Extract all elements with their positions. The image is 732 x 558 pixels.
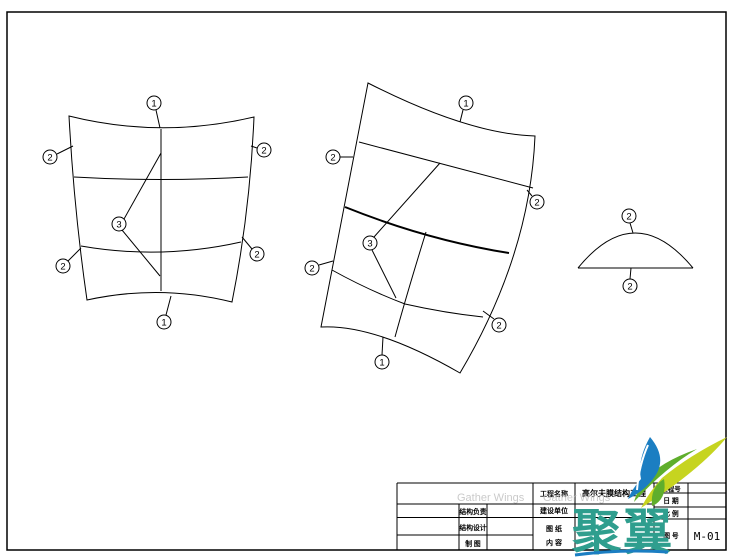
callout-balloon: 2 xyxy=(257,143,271,157)
callout-balloon: 2 xyxy=(623,279,637,293)
callout-number: 2 xyxy=(47,152,52,163)
structure-design-label: 结构设计 xyxy=(459,523,486,532)
callout-number: 1 xyxy=(463,98,468,109)
watermark: Gather Wings Gather Wings xyxy=(457,492,611,504)
callout-balloon: 2 xyxy=(305,261,319,275)
panel-c xyxy=(578,223,693,279)
leader-line xyxy=(630,268,631,279)
panel-b-seam-1 xyxy=(359,142,533,188)
callout-number: 2 xyxy=(627,281,632,292)
leader-line xyxy=(122,230,160,276)
leader-line xyxy=(372,250,396,298)
callout-number: 3 xyxy=(116,219,121,230)
callout-balloon: 1 xyxy=(459,96,473,110)
callout-balloon: 3 xyxy=(112,217,126,231)
callout-balloon: 2 xyxy=(56,259,70,273)
callout-balloon: 1 xyxy=(147,96,161,110)
leader-line xyxy=(166,296,171,315)
panel-c-arc xyxy=(578,233,693,268)
leader-line xyxy=(460,110,463,122)
panel-c-callouts: 2 2 xyxy=(622,209,637,293)
leader-line xyxy=(374,163,440,237)
drawing-no-value: M-01 xyxy=(694,530,721,543)
sheet-content-label-line2: 内 容 xyxy=(546,538,562,547)
callout-balloon: 2 xyxy=(622,209,636,223)
cad-drawing-svg: 1 2 2 3 2 2 1 xyxy=(0,0,732,558)
leader-line xyxy=(156,110,160,128)
callout-balloon: 2 xyxy=(43,150,57,164)
leader-line xyxy=(68,248,81,261)
sheet-content-label-line1: 图 纸 xyxy=(546,524,562,533)
leader-line xyxy=(382,337,383,355)
callout-number: 2 xyxy=(496,320,501,331)
callout-number: 3 xyxy=(367,238,372,249)
callout-balloon: 2 xyxy=(492,318,506,332)
callout-number: 2 xyxy=(261,145,266,156)
callout-number: 2 xyxy=(626,211,631,222)
leader-line xyxy=(242,237,252,249)
callout-number: 2 xyxy=(534,197,539,208)
callout-number: 2 xyxy=(330,152,335,163)
panel-a xyxy=(57,110,257,315)
callout-balloon: 1 xyxy=(375,355,389,369)
callout-balloon: 3 xyxy=(363,236,377,250)
callout-number: 2 xyxy=(60,261,65,272)
structure-lead-label: 结构负责 xyxy=(459,507,486,516)
date-label: 日 期 xyxy=(663,496,679,505)
callout-number: 2 xyxy=(254,249,259,260)
drafting-label: 制 图 xyxy=(465,539,481,548)
callout-number: 1 xyxy=(379,357,384,368)
leader-line xyxy=(483,311,494,319)
callout-number: 2 xyxy=(309,263,314,274)
callout-balloon: 1 xyxy=(157,315,171,329)
callout-number: 1 xyxy=(161,317,166,328)
client-label: 建设单位 xyxy=(540,506,568,515)
watermark-text: Gather Wings xyxy=(457,492,525,504)
callout-balloon: 2 xyxy=(326,150,340,164)
callout-number: 1 xyxy=(151,98,156,109)
callout-balloon: 2 xyxy=(250,247,264,261)
panel-b-callouts: 1 2 2 3 2 2 1 xyxy=(305,96,544,369)
watermark-text: Gather Wings xyxy=(543,492,611,504)
panel-a-callouts: 1 2 2 3 2 2 1 xyxy=(43,96,271,329)
leader-line xyxy=(630,223,633,233)
leader-line xyxy=(124,153,161,219)
callout-balloon: 2 xyxy=(530,195,544,209)
panel-b-seam-center xyxy=(395,232,426,337)
drawing-sheet: 1 2 2 3 2 2 1 xyxy=(0,0,732,558)
leader-line xyxy=(319,261,333,265)
